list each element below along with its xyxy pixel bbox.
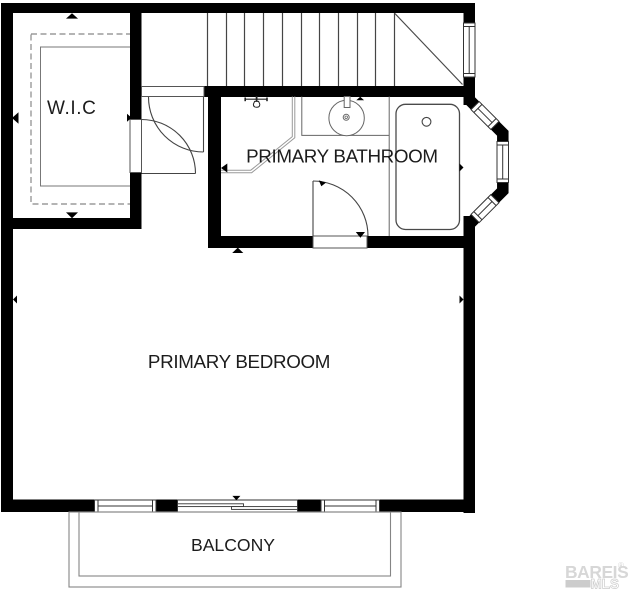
svg-text:W.I.C: W.I.C — [47, 98, 96, 119]
svg-text:BALCONY: BALCONY — [191, 535, 275, 555]
svg-text:PRIMARY BATHROOM: PRIMARY BATHROOM — [246, 146, 438, 167]
svg-text:®: ® — [618, 561, 624, 570]
svg-text:MLS: MLS — [591, 577, 620, 592]
svg-text:PRIMARY BEDROOM: PRIMARY BEDROOM — [148, 351, 330, 372]
